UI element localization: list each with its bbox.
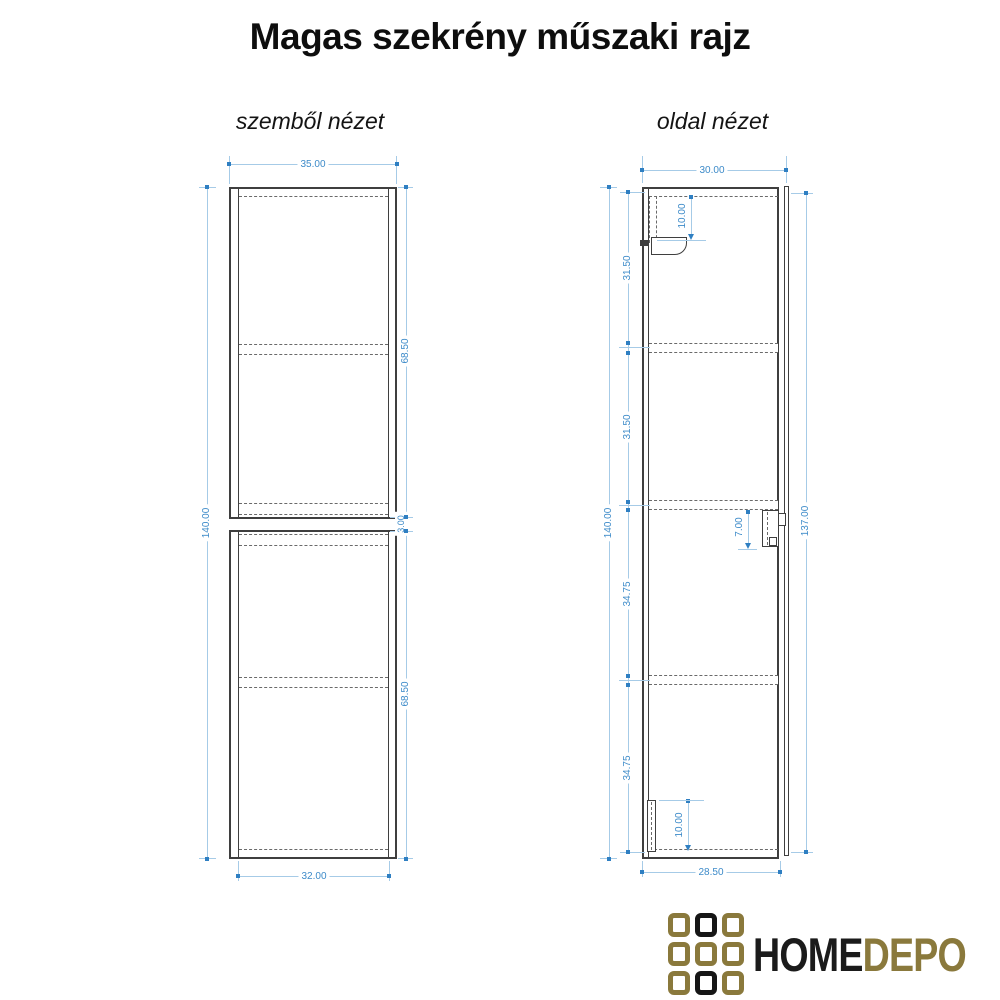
tick bbox=[640, 870, 644, 874]
tick bbox=[784, 168, 788, 172]
tick bbox=[804, 191, 808, 195]
side-top-panel-dashed-line bbox=[649, 196, 778, 197]
tick bbox=[640, 168, 644, 172]
front-right-wall-inner-line bbox=[388, 532, 389, 857]
tick bbox=[395, 162, 399, 166]
dim-side-total-height: 140.00 bbox=[603, 505, 615, 542]
dim-front-inner-width: 32.00 bbox=[298, 871, 329, 883]
tick bbox=[404, 185, 408, 189]
ext-line bbox=[780, 861, 781, 877]
ext-line bbox=[791, 852, 813, 853]
tick bbox=[227, 162, 231, 166]
dim-line-bottom-bracket bbox=[688, 801, 689, 849]
tick bbox=[626, 500, 630, 504]
leader-line bbox=[738, 549, 757, 550]
dim-front-upper-section: 68.50 bbox=[400, 335, 412, 366]
ext-line bbox=[619, 347, 650, 348]
logo-grid-cell bbox=[695, 942, 717, 966]
side-view-label: oldal nézet bbox=[600, 108, 825, 135]
side-back-wall-inner-line bbox=[648, 189, 649, 857]
page-title: Magas szekrény műszaki rajz bbox=[0, 16, 1000, 58]
tick bbox=[607, 185, 611, 189]
top-bracket-dashed-line bbox=[649, 196, 650, 243]
dim-side-bottom-bracket: 10.00 bbox=[674, 809, 686, 840]
dim-line-top-bracket bbox=[691, 197, 692, 238]
logo-grid-cell bbox=[722, 913, 744, 937]
dim-side-segment-2: 31.50 bbox=[622, 411, 634, 442]
bottom-bracket-dashed-line bbox=[651, 802, 652, 850]
leader-line bbox=[657, 240, 706, 241]
side-shelf-upper bbox=[649, 343, 778, 353]
dim-line-handle bbox=[748, 512, 749, 547]
front-bottom-panel-dashed-line bbox=[239, 849, 388, 850]
ext-line bbox=[619, 505, 650, 506]
front-upper-module-bottom-panel bbox=[239, 503, 388, 515]
side-door-meeting-notch bbox=[778, 513, 786, 526]
logo-grid-cell bbox=[722, 971, 744, 995]
leader-line bbox=[659, 800, 704, 801]
front-shelf-lower bbox=[239, 677, 388, 688]
logo-grid-cell bbox=[668, 913, 690, 937]
tick bbox=[804, 850, 808, 854]
dim-side-outer-depth: 30.00 bbox=[696, 165, 727, 177]
ext-line bbox=[238, 861, 239, 881]
tick bbox=[205, 185, 209, 189]
dim-front-outer-width: 35.00 bbox=[297, 159, 328, 171]
side-shelf-middle bbox=[649, 500, 778, 510]
ext-line bbox=[620, 192, 645, 193]
front-right-wall-inner-line bbox=[388, 189, 389, 517]
logo-text-depo: DEPO bbox=[863, 927, 966, 982]
tick bbox=[626, 341, 630, 345]
tick bbox=[404, 515, 408, 519]
logo-grid-icon bbox=[668, 913, 744, 995]
ext-line bbox=[619, 680, 650, 681]
tick bbox=[689, 195, 693, 199]
logo-text-home: HOME bbox=[753, 927, 863, 982]
tick bbox=[236, 874, 240, 878]
door-handle-inner bbox=[769, 537, 777, 546]
front-shelf-upper bbox=[239, 344, 388, 355]
tick bbox=[404, 529, 408, 533]
dim-side-segment-4: 34.75 bbox=[622, 752, 634, 783]
tick bbox=[205, 857, 209, 861]
front-left-wall-inner-line bbox=[238, 532, 239, 857]
tick bbox=[607, 857, 611, 861]
tick bbox=[626, 508, 630, 512]
logo-grid-cell bbox=[668, 971, 690, 995]
tick bbox=[626, 683, 630, 687]
tick bbox=[746, 510, 750, 514]
front-top-panel-dashed-line bbox=[239, 196, 388, 197]
front-lower-module bbox=[229, 530, 397, 859]
logo-wordmark: HOMEDEPO bbox=[753, 913, 966, 995]
logo-grid-cell bbox=[668, 942, 690, 966]
tick bbox=[626, 850, 630, 854]
dim-front-lower-section: 68.50 bbox=[400, 678, 412, 709]
tick bbox=[626, 190, 630, 194]
dim-side-top-bracket: 10.00 bbox=[677, 200, 689, 231]
logo-grid-cell bbox=[722, 942, 744, 966]
top-bracket-dashed-line bbox=[656, 196, 657, 243]
side-shelf-lower bbox=[649, 675, 778, 685]
side-bottom-panel-dashed-line bbox=[649, 849, 778, 850]
dim-side-handle: 7.00 bbox=[734, 514, 746, 539]
technical-drawing-page: Magas szekrény műszaki rajz szemből néze… bbox=[0, 0, 1000, 1000]
logo-grid-cell bbox=[695, 971, 717, 995]
arrow-down-icon bbox=[685, 845, 691, 851]
ext-line bbox=[620, 852, 645, 853]
tick bbox=[626, 351, 630, 355]
dim-side-inner-depth: 28.50 bbox=[695, 867, 726, 879]
ext-line bbox=[229, 156, 230, 184]
ext-line bbox=[389, 861, 390, 881]
dim-side-door-height: 137.00 bbox=[800, 503, 812, 540]
dim-side-segment-1: 31.50 bbox=[622, 252, 634, 283]
front-lower-module-top-panel bbox=[239, 534, 388, 546]
front-view-label: szemből nézet bbox=[195, 108, 425, 135]
ext-line bbox=[791, 193, 813, 194]
tick bbox=[404, 857, 408, 861]
tick bbox=[387, 874, 391, 878]
dim-side-segment-3: 34.75 bbox=[622, 578, 634, 609]
tick bbox=[626, 674, 630, 678]
top-bracket-hook bbox=[640, 240, 649, 246]
door-handle-dashed-line bbox=[767, 512, 768, 545]
dim-front-total-height: 140.00 bbox=[201, 505, 213, 542]
logo-grid-cell bbox=[695, 913, 717, 937]
ext-line bbox=[396, 156, 397, 184]
tick bbox=[778, 870, 782, 874]
ext-line bbox=[642, 861, 643, 877]
side-body bbox=[642, 187, 779, 859]
